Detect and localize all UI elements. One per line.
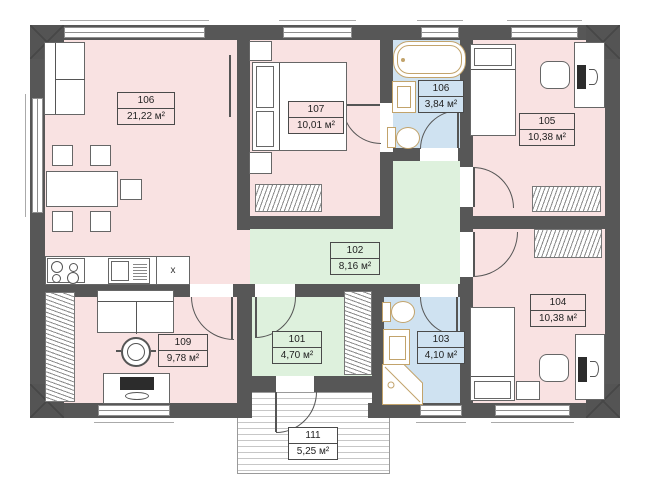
window-sill [416,422,466,423]
wall [237,216,393,229]
door-leaf [255,297,257,337]
dining-table [46,171,118,207]
chair [120,179,142,200]
desk [574,42,605,108]
room-area: 4,10 м² [418,348,464,363]
room-label-102: 102 8,16 м² [330,242,380,275]
wardrobe [344,291,372,375]
room-number: 109 [159,335,207,351]
room-label-101: 101 4,70 м² [272,331,322,364]
wall [460,207,473,232]
door-opening [420,284,458,297]
kitchen-cabinet-x: x [156,256,190,285]
window [32,98,43,213]
room-label-106-living: 106 21,22 м² [117,92,175,125]
room-area: 9,78 м² [159,351,207,366]
window-sill [491,422,574,423]
chair [90,145,111,166]
window [495,405,570,416]
door-leaf [275,392,277,432]
window [511,27,578,38]
door-opening [255,284,295,297]
window-sill [507,20,582,21]
door-opening [420,148,458,161]
bathtub [393,41,466,78]
wall [237,38,250,230]
floor-plan: x [0,0,654,502]
door-leaf [342,104,380,106]
sofa [97,290,174,333]
shower [382,364,423,405]
room-area: 10,01 м² [289,118,343,133]
window [98,405,170,416]
wall [393,148,420,161]
kitchen-sink [108,258,150,284]
toilet-bowl [391,301,415,323]
room-label-103: 103 4,10 м² [417,331,465,364]
wall [233,284,255,297]
wall [314,376,372,392]
wall [30,25,45,418]
wall [380,152,393,216]
window [283,27,352,38]
room-label-109: 109 9,78 м² [158,334,208,367]
room-number: 106 [419,81,463,97]
door-leaf [473,232,475,276]
room-number: 102 [331,243,379,259]
pot-handle [151,350,156,352]
nightstand [249,41,272,61]
door-leaf [457,110,459,148]
sink [392,81,416,113]
wall [473,216,605,229]
window [64,27,205,38]
single-bed [470,44,516,136]
window-sill [279,20,356,21]
tv-stand [103,373,170,404]
desk [575,334,605,400]
kitchen-cabinet-x-label: x [171,265,176,276]
door-leaf [229,55,231,117]
toilet [382,302,391,322]
room-label-107: 107 10,01 м² [288,101,344,134]
wardrobe [45,292,75,402]
desk-chair [540,61,570,89]
room-area: 8,16 м² [331,259,379,274]
stove [47,258,85,283]
room-number: 107 [289,102,343,118]
window-sill [417,20,463,21]
room-area: 21,22 м² [118,109,174,124]
wardrobe [532,186,601,212]
wall [458,284,473,297]
window [420,405,462,416]
wardrobe [255,184,322,212]
room-area: 10,38 м² [531,311,585,326]
room-label-106-bath: 106 3,84 м² [418,80,464,113]
chair [52,145,73,166]
window [421,27,459,38]
room-number: 106 [118,93,174,109]
room-number: 103 [418,332,464,348]
desk-chair [539,354,569,382]
door-leaf [231,297,233,339]
nightstand [516,381,540,400]
chair [52,211,73,232]
room-number: 104 [531,295,585,311]
room-area: 3,84 м² [419,97,463,112]
room-area: 4,70 м² [273,348,321,363]
door-opening [190,284,233,297]
window-sill [94,422,174,423]
room-label-104: 104 10,38 м² [530,294,586,327]
door-opening [460,232,473,277]
sink [383,329,410,365]
wall [237,284,252,418]
wall [250,376,276,392]
sofa [44,42,85,115]
room-number: 105 [520,114,574,130]
toilet-bowl [396,127,420,149]
door-opening [460,167,473,207]
pot [121,337,151,367]
wall [368,403,620,418]
nightstand [249,152,272,174]
single-bed [470,307,515,401]
pot-handle [116,350,121,352]
wall [605,25,620,418]
room-label-111-porch: 111 5,25 м² [288,427,338,460]
room-area: 10,38 м² [520,130,574,145]
room-label-105: 105 10,38 м² [519,113,575,146]
door-leaf [473,167,475,207]
door-leaf [456,297,458,335]
room-number: 101 [273,332,321,348]
window-sill [25,94,26,217]
room-area: 5,25 м² [289,444,337,459]
door-opening [276,376,314,392]
wardrobe [534,229,602,258]
chair [90,211,111,232]
window-sill [60,20,209,21]
room-number: 111 [289,428,337,444]
toilet [387,127,396,148]
